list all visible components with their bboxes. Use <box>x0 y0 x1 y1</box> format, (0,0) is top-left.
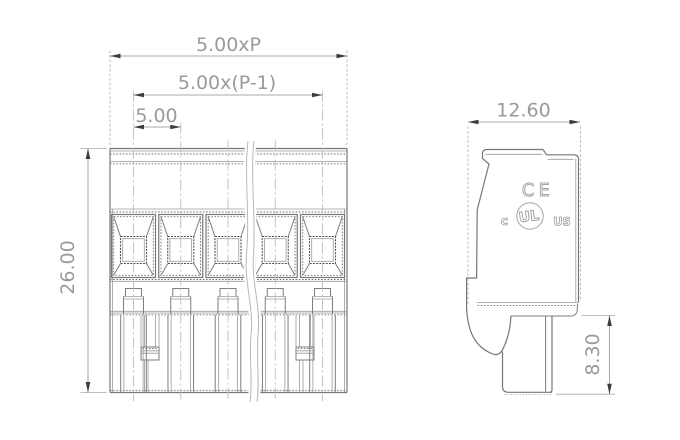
dim-pitch-label: 5.00 <box>135 105 177 127</box>
arrow <box>570 120 581 125</box>
arrow <box>468 120 479 125</box>
ce-mark: CE <box>522 181 554 201</box>
arrow <box>312 93 323 98</box>
ul-mark: UL c US <box>501 203 571 229</box>
ul-mark-c: c <box>501 213 508 228</box>
dim-side-width-label: 12.60 <box>496 100 550 122</box>
snap-latch <box>296 315 314 392</box>
arrow <box>110 54 121 59</box>
pole-centerlines <box>134 91 323 402</box>
ul-mark-letters: UL <box>518 208 540 227</box>
dim-height-label: 26.00 <box>57 240 79 294</box>
drawing-canvas: CE UL c US 5.00xP 5.0 <box>0 0 680 440</box>
arrow <box>337 54 348 59</box>
front-view <box>110 149 347 393</box>
arrow <box>607 384 612 395</box>
dim-pole-span-label: 5.00x(P-1) <box>178 72 276 94</box>
snap-latch <box>141 315 159 392</box>
arrow <box>607 316 612 327</box>
arrow <box>86 149 91 160</box>
dim-total-width-label: 5.00xP <box>196 34 261 56</box>
terminal-block-drawing-page: CE UL c US 5.00xP 5.0 <box>0 0 680 440</box>
side-view: CE UL c US <box>467 150 579 395</box>
front-view-break <box>244 141 261 402</box>
dim-pin-length-label: 8.30 <box>582 333 604 375</box>
arrow <box>86 382 91 393</box>
ul-mark-us: US <box>553 215 571 229</box>
arrow <box>134 93 145 98</box>
